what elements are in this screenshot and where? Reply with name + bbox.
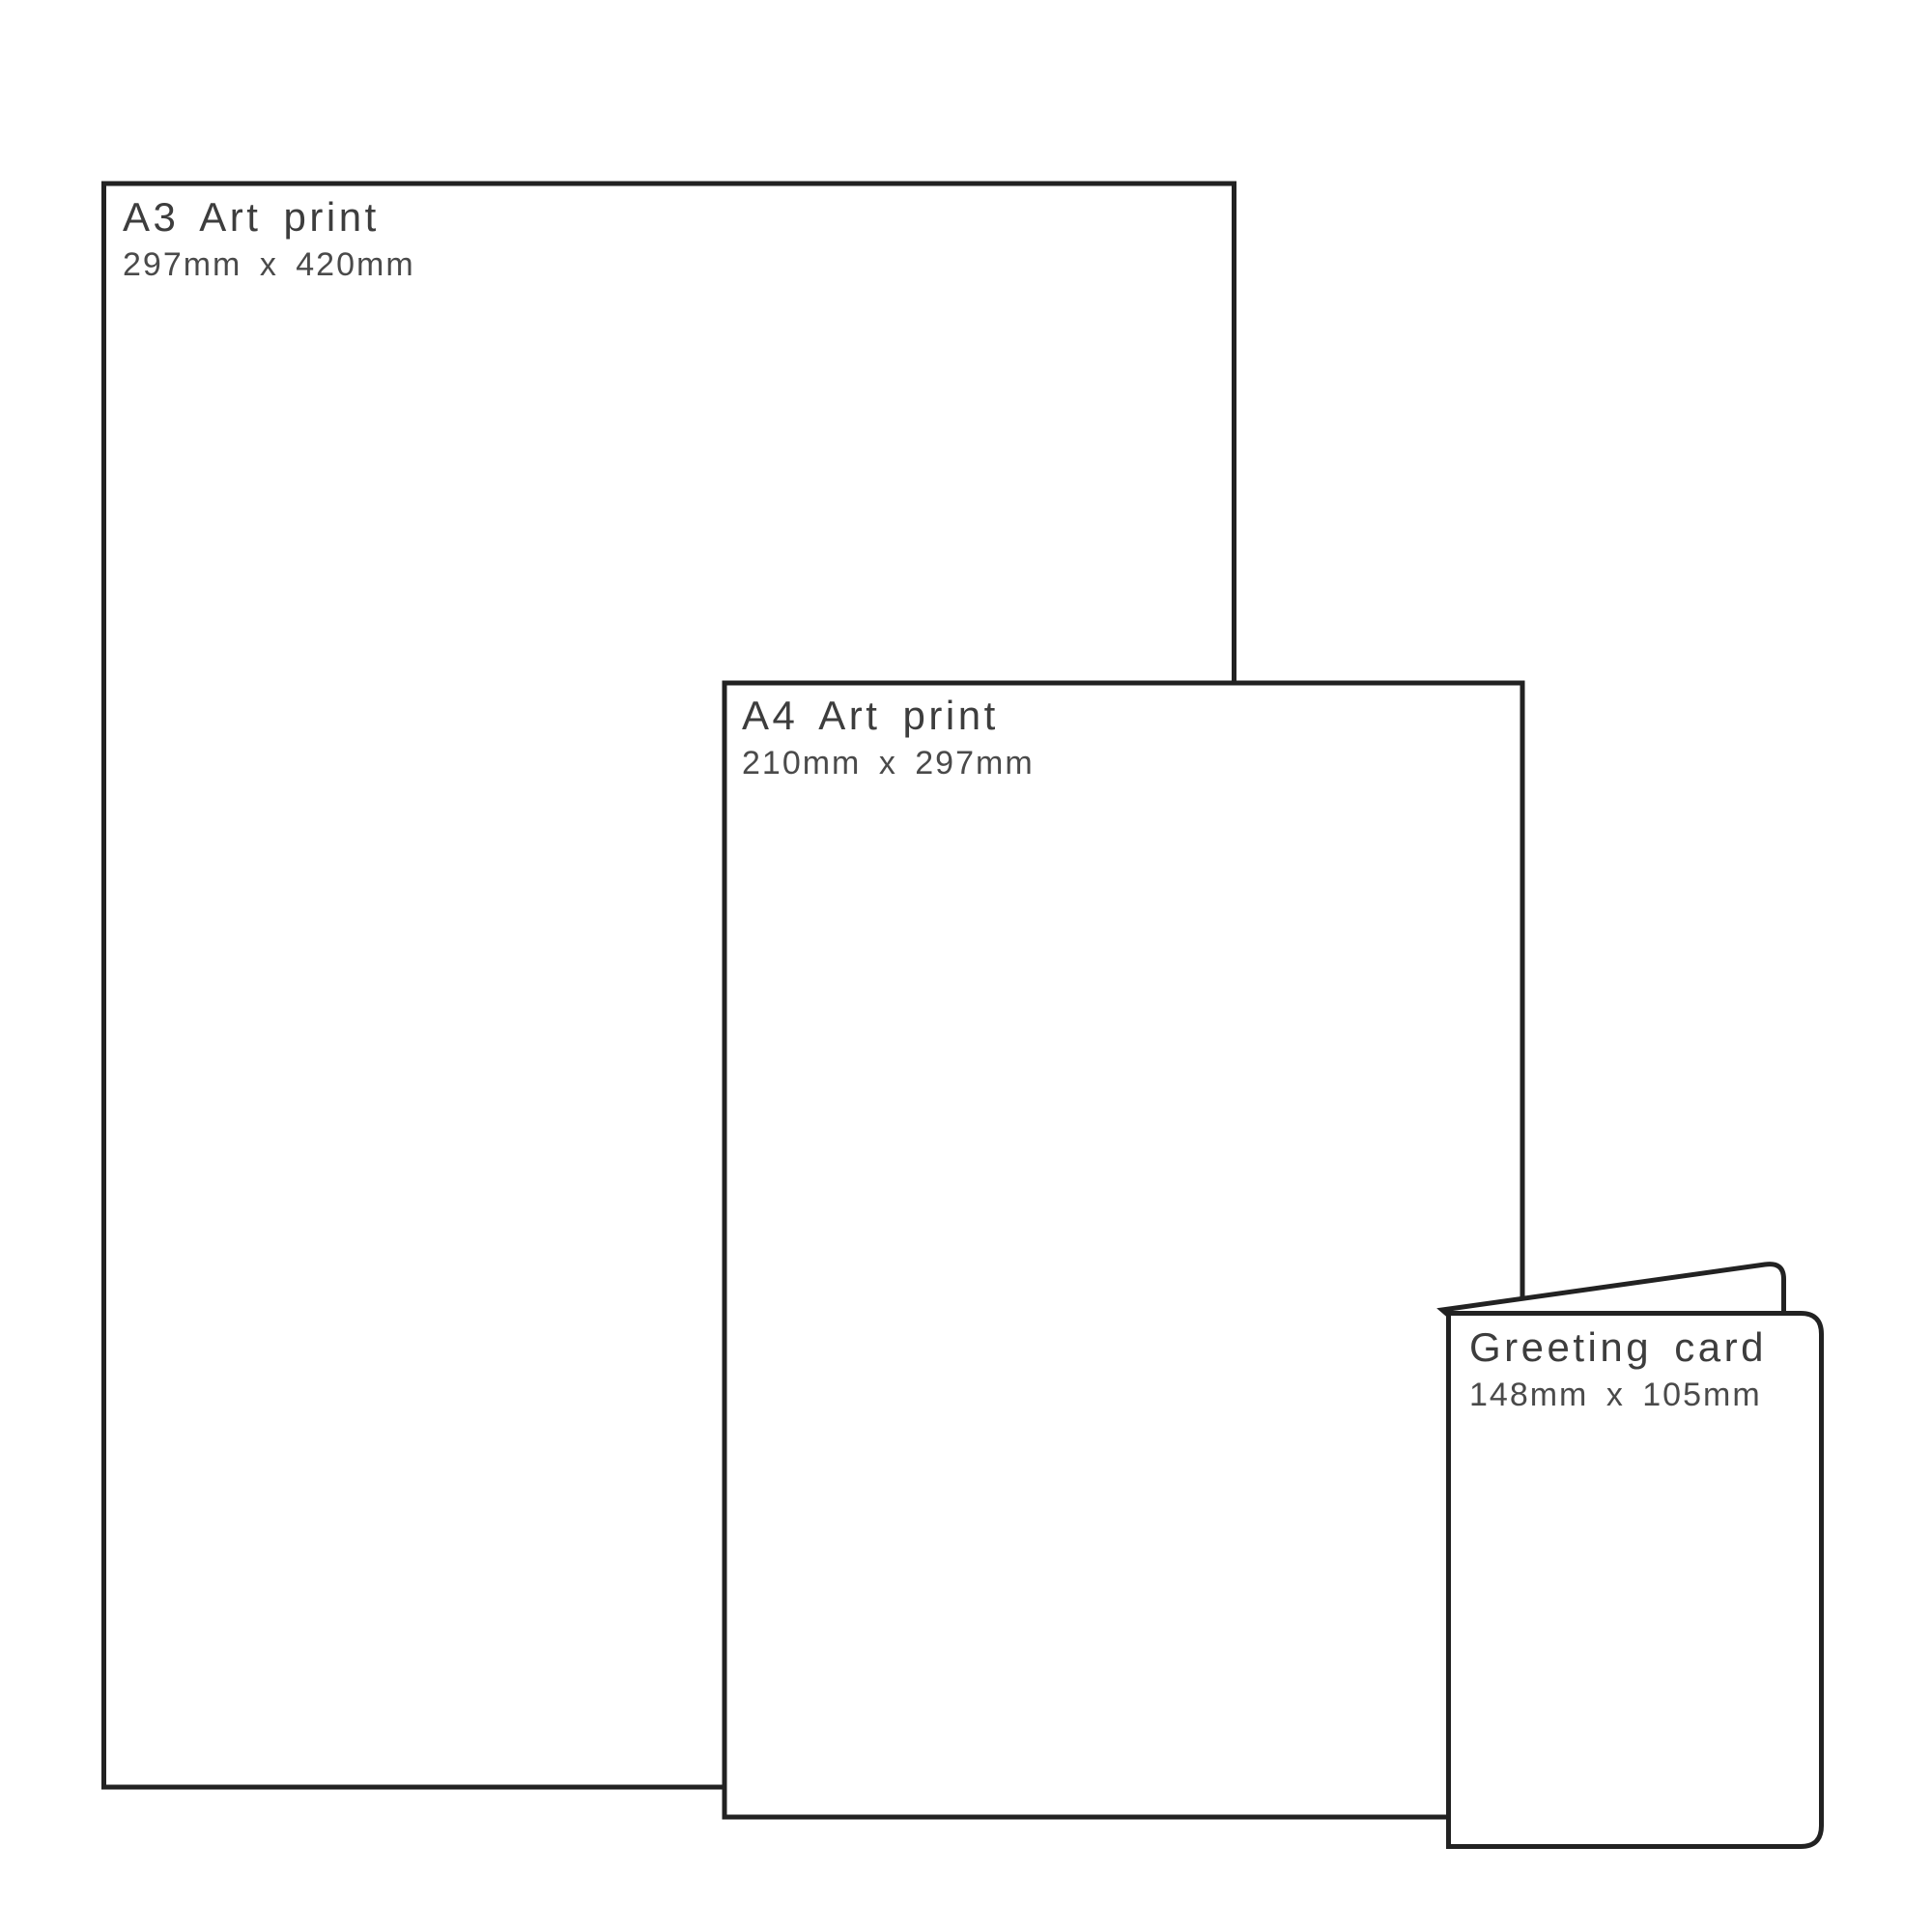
a4-dimensions: 210mm x 297mm xyxy=(742,744,1035,783)
greeting-card-label-group: Greeting card 148mm x 105mm xyxy=(1469,1323,1767,1414)
a4-label-group: A4 Art print 210mm x 297mm xyxy=(742,692,1035,782)
a3-dimensions: 297mm x 420mm xyxy=(123,245,415,285)
a4-label: A4 Art print xyxy=(742,692,1035,740)
diagram-canvas xyxy=(0,0,1932,1932)
a3-label-group: A3 Art print 297mm x 420mm xyxy=(123,193,415,284)
size-comparison-diagram: A3 Art print 297mm x 420mm A4 Art print … xyxy=(0,0,1932,1932)
a4-sheet-outline xyxy=(724,683,1522,1817)
greeting-card-dimensions: 148mm x 105mm xyxy=(1469,1376,1767,1415)
greeting-card-label: Greeting card xyxy=(1469,1323,1767,1372)
a3-label: A3 Art print xyxy=(123,193,415,241)
